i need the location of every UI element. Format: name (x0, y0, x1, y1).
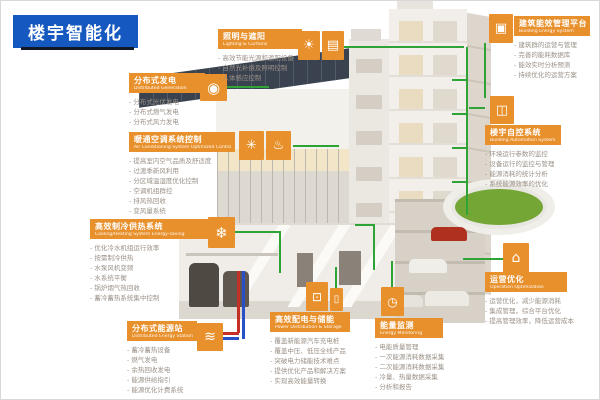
section-title-cn: 分布式发电 (134, 75, 201, 86)
connector-line (463, 258, 503, 260)
cold-pipe-line (223, 337, 239, 340)
icon-glyph: ❄ (215, 224, 228, 242)
section-items: 电能质量管理 一次能源消耗数据采集 二次能源消耗数据采集 冷量、热量数据采集 分… (375, 342, 443, 392)
list-item: 燃气发电 (127, 355, 197, 365)
list-item: 电能质量管理 (375, 342, 443, 352)
section-header: 楼宇自控系统 Building Automation System (485, 125, 561, 145)
list-item: 提供优化产品和解决方案 (270, 366, 350, 376)
connector-line (279, 231, 281, 273)
list-item: 分布式光伏发电 (129, 97, 205, 107)
list-item: 按需制冷供热 (90, 253, 209, 263)
connector-line (469, 107, 485, 109)
section-operation-optimization: 运营优化 Operation Optimization 运营优化，减少能源消耗 … (485, 272, 567, 326)
list-item: 水系统平衡 (90, 273, 209, 283)
connector-line (227, 86, 269, 88)
list-item: 蓄冷蓄热设备 (127, 345, 197, 355)
section-power-distribution-storage: 高效配电与储能 Power Distribution & Storage 覆盖新… (270, 312, 350, 386)
section-title-cn: 建筑能效管理平台 (519, 18, 586, 29)
list-item: 空调机组群控 (129, 186, 235, 196)
icon-glyph: ⊡ (312, 290, 322, 304)
list-item: 设备运行的监控与管理 (485, 159, 561, 169)
white-car (425, 291, 469, 306)
section-header: 高效配电与储能 Power Distribution & Storage (270, 312, 350, 332)
connector-line (391, 261, 393, 288)
section-title-en: Operation Optimization (490, 285, 563, 290)
hot-pipe-line (237, 271, 240, 333)
list-item: 集成管理，综合平台优化 (485, 306, 567, 316)
list-item: 覆盖中压、低压全线产品 (270, 346, 350, 356)
section-header: 高效制冷供热系统 Cooling/Heating System Energy-s… (90, 219, 209, 239)
connector-line (452, 113, 466, 115)
connector-line (484, 43, 486, 98)
section-title-en: Building Automation System (490, 138, 557, 143)
connector-line (355, 224, 373, 226)
meter-icon: ◷ (381, 287, 404, 316)
list-item: 能源消耗的统计分析 (485, 169, 561, 179)
section-items: 高效节能光源和遮阳设备 自然光补偿及照明控制 人体感应控制 (218, 53, 302, 83)
infographic-canvas: 楼宇智能化 ◉ ☀ ▤ ▣ ◫ ✳ ♨ ❄ ≋ ⊡ ▯ ◷ ⌂ 分布式发电 Di… (0, 0, 600, 400)
icon-glyph: ▣ (495, 21, 507, 36)
section-items: 覆盖新能源汽车充电桩 覆盖中压、低压全线产品 突破电力储能技术难点 提供优化产品… (270, 336, 350, 386)
list-item: 分析和报告 (375, 382, 443, 392)
monitor-icon: ⊡ (306, 282, 328, 311)
list-item: 分区域温湿度优化控制 (129, 176, 235, 186)
icon-glyph: ▯ (334, 294, 340, 305)
list-item: 余热回收发电 (127, 365, 197, 375)
list-item: 水泵风机变频 (90, 263, 209, 273)
section-distributed-generation: 分布式发电 Distributed Generation 分布式光伏发电 分布式… (129, 73, 205, 127)
tower-rooftop-2 (351, 29, 381, 41)
list-item: 环境运行参数的监控 (485, 149, 561, 159)
list-item: 蓄冷蓄热系统集中控制 (90, 293, 209, 303)
section-header: 暖通空调系统控制 Air Conditioning System Optimiz… (129, 132, 235, 152)
icon-glyph: ◫ (496, 103, 508, 118)
section-cooling-heating: 高效制冷供热系统 Cooling/Heating System Energy-s… (90, 219, 209, 303)
icon-glyph: ◷ (387, 295, 397, 309)
list-item: 建筑群的运营与管理 (514, 40, 590, 50)
list-item: 能源优化计费系统 (127, 385, 197, 395)
title-underline (21, 47, 134, 50)
connector-line (452, 181, 466, 183)
section-title-cn: 楼宇自控系统 (490, 127, 557, 138)
list-item: 一次能源消耗数据采集 (375, 352, 443, 362)
section-title-en: Cooling/Heating System Energy-saving (95, 232, 205, 237)
list-item: 突破电力储能技术难点 (270, 356, 350, 366)
icon-glyph: ▤ (327, 38, 339, 53)
section-title-cn: 照明与遮阳 (223, 31, 298, 42)
section-header: 分布式发电 Distributed Generation (129, 73, 205, 93)
house-display-icon: ⌂ (503, 243, 529, 273)
section-items: 环境运行参数的监控 设备运行的监控与管理 能源消耗的统计分析 系统能源效率的优化 (485, 149, 561, 189)
pipes-icon: ≋ (197, 323, 223, 351)
section-title-en: Power Distribution & Storage (275, 325, 346, 330)
section-items: 运营优化，减少能源消耗 集成管理，综合平台优化 提高管理效率，降低运营成本 (485, 296, 567, 326)
window-panels-icon: ◫ (490, 96, 514, 124)
section-title-cn: 能量监测 (380, 320, 439, 331)
list-item: 持续优化的运营方案 (514, 70, 590, 80)
connector-line (335, 267, 337, 289)
connector-line (452, 79, 466, 81)
icon-glyph: ⌂ (512, 250, 521, 266)
section-building-energy-platform: 建筑能效管理平台 Building Energy System 建筑群的运营与管… (514, 16, 590, 80)
section-title-cn: 分布式能源站 (132, 323, 193, 334)
section-items: 蓄冷蓄热设备 燃气发电 余热回收发电 能源供给指引 能源优化计费系统 (127, 345, 197, 395)
section-distributed-energy-station: 分布式能源站 Distributed Energy Station 蓄冷蓄热设备… (127, 321, 197, 395)
list-item: 运营优化，减少能源消耗 (485, 296, 567, 306)
connector-line (466, 47, 468, 215)
section-title-cn: 暖通空调系统控制 (134, 134, 231, 145)
list-item: 能效实时分析预测 (514, 60, 590, 70)
white-car (409, 259, 447, 273)
list-item: 提高室内空气品质及舒适度 (129, 156, 235, 166)
section-title-cn: 运营优化 (490, 274, 563, 285)
section-building-automation: 楼宇自控系统 Building Automation System 环境运行参数… (485, 125, 561, 189)
section-header: 能量监测 Energy Monitoring (375, 318, 443, 338)
section-title-en: Air Conditioning System Optimized Contro… (134, 145, 231, 150)
icon-glyph: ✳ (246, 138, 257, 153)
section-energy-monitoring: 能量监测 Energy Monitoring 电能质量管理 一次能源消耗数据采集… (375, 318, 443, 392)
list-item: 变风量系统 (129, 206, 235, 216)
section-title-en: Building Energy System (519, 29, 586, 34)
curtain-wall-mullions (217, 149, 349, 225)
thermometer-icon: ♨ (266, 131, 291, 160)
list-item: 高效节能光源和遮阳设备 (218, 53, 302, 63)
list-item: 排风热回收 (129, 196, 235, 206)
section-lighting-curtains: 照明与遮阳 Lighting & Curtains 高效节能光源和遮阳设备 自然… (218, 29, 302, 83)
list-item: 实现高效能量转换 (270, 376, 350, 386)
section-items: 分布式光伏发电 分布式燃气发电 分布式风力发电 (129, 97, 205, 127)
page-title-text: 楼宇智能化 (28, 19, 123, 44)
boiler-equipment-2 (223, 271, 249, 307)
section-title-en: Distributed Energy Station (132, 334, 193, 339)
cold-pipe-line (242, 271, 245, 339)
list-item: 提高管理效率，降低运营成本 (485, 316, 567, 326)
list-item: 过渡季新风利用 (129, 166, 235, 176)
list-item: 完善的能耗数据库 (514, 50, 590, 60)
fan-icon: ✳ (239, 131, 264, 160)
list-item: 能源供给指引 (127, 375, 197, 385)
section-items: 优化冷水机组运行效率 按需制冷供热 水泵风机变频 水系统平衡 锅炉烟气热回收 蓄… (90, 243, 209, 303)
section-title-cn: 高效制冷供热系统 (95, 221, 205, 232)
list-item: 分布式风力发电 (129, 117, 205, 127)
blinds-icon: ▤ (322, 31, 344, 60)
list-item: 优化冷水机组运行效率 (90, 243, 209, 253)
icon-glyph: ≋ (204, 329, 216, 345)
section-title-en: Energy Monitoring (380, 331, 439, 336)
list-item: 人体感应控制 (218, 73, 302, 83)
connector-line (293, 145, 339, 147)
connector-line (373, 224, 375, 270)
icon-glyph: ♨ (273, 138, 285, 153)
list-item: 冷量、热量数据采集 (375, 372, 443, 382)
battery-icon: ▯ (330, 288, 343, 311)
list-item: 锅炉烟气热回收 (90, 283, 209, 293)
section-header: 分布式能源站 Distributed Energy Station (127, 321, 197, 341)
list-item: 二次能源消耗数据采集 (375, 362, 443, 372)
section-items: 建筑群的运营与管理 完善的能耗数据库 能效实时分析预测 持续优化的运营方案 (514, 40, 590, 80)
section-header: 照明与遮阳 Lighting & Curtains (218, 29, 302, 49)
red-car (431, 227, 467, 241)
section-header: 运营优化 Operation Optimization (485, 272, 567, 292)
hot-pipe-line (223, 332, 239, 335)
connector-line (452, 147, 466, 149)
section-hvac-control: 暖通空调系统控制 Air Conditioning System Optimiz… (129, 132, 235, 216)
icon-glyph: ☀ (303, 38, 315, 53)
equipment-cabinet (339, 251, 361, 285)
list-item: 分布式燃气发电 (129, 107, 205, 117)
computer-icon: ▣ (489, 14, 513, 43)
section-title-en: Lighting & Curtains (223, 42, 298, 47)
list-item: 覆盖新能源汽车充电桩 (270, 336, 350, 346)
connector-line (235, 231, 281, 233)
snowflake-icon: ❄ (208, 217, 235, 248)
list-item: 自然光补偿及照明控制 (218, 63, 302, 73)
section-title-cn: 高效配电与储能 (275, 314, 346, 325)
list-item: 系统能源效率的优化 (485, 179, 561, 189)
section-title-en: Distributed Generation (134, 86, 201, 91)
section-items: 提高室内空气品质及舒适度 过渡季新风利用 分区域温湿度优化控制 空调机组群控 排… (129, 156, 235, 216)
page-title: 楼宇智能化 (13, 15, 138, 48)
section-header: 建筑能效管理平台 Building Energy System (514, 16, 590, 36)
connector-line (344, 46, 464, 48)
